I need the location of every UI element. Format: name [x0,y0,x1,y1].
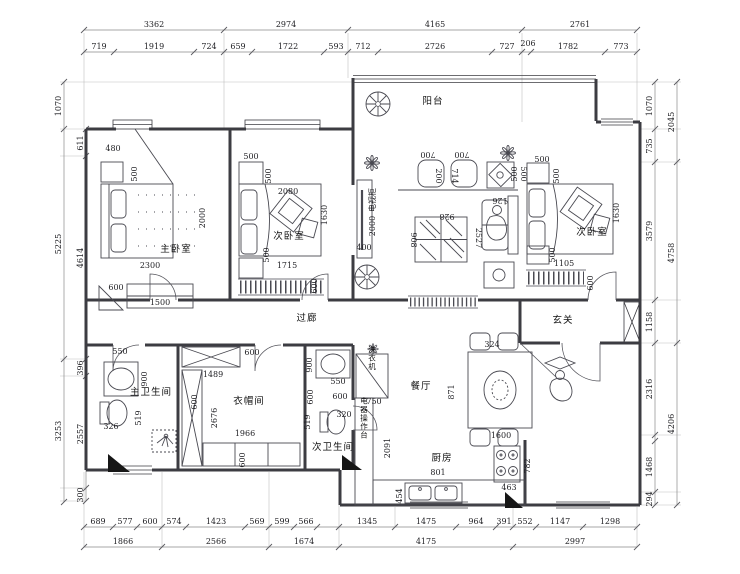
dim-label: 500 [519,166,528,181]
room-label-corridor: 过廊 [296,312,317,324]
level-triangle [505,492,523,508]
dim-label: 2566 [206,537,226,546]
dim-label: 600 [190,394,199,409]
dim-label: 900 [140,371,149,386]
pillow-icon [529,221,545,249]
dim-label: 4758 [667,243,676,263]
dim-label: 577 [117,517,132,526]
plant-icon [361,152,382,173]
dim-label: 611 [76,135,85,150]
dim-label: 2300 [140,261,160,270]
balcony-window [353,76,596,83]
dim-label: 1630 [320,205,329,225]
dim-label: 1866 [113,537,133,546]
plant-icon [497,142,518,163]
shower-head-icon [157,434,173,447]
dim-label: 550 [112,347,127,356]
dim-label: 900 [305,357,314,372]
toilet-icon [100,402,109,424]
label-tv-cabinet: 电视柜 [367,188,377,212]
dim-label: 1966 [235,429,255,438]
side-table-icon [484,262,514,288]
chair-icon [470,429,490,446]
dim-label: 600 [310,278,319,293]
dim-label: 1475 [416,517,436,526]
room-label-dining: 餐厅 [410,380,431,392]
dim-label: 400 [356,243,371,252]
dim-label: 1070 [645,96,654,116]
pillow-icon [241,224,257,254]
dim-label: 500 [264,168,273,183]
dim-label: 396 [76,360,85,375]
kitchen-counter-icon [355,398,525,505]
stove-icon [494,446,520,482]
desk-icon [270,190,312,232]
bed3-icon [527,163,613,264]
dim-label: 4175 [416,537,436,546]
sink-icon [321,354,345,374]
dim-label: 964 [468,517,483,526]
dim-label: 801 [430,468,445,477]
dim-label: 500 [534,155,549,164]
dim-label: 4206 [667,414,676,434]
top-right-window [601,119,633,125]
nightstand-icon [239,162,263,184]
dim-label: 3253 [54,421,63,441]
dim-label: 871 [447,384,456,399]
dim-label: 519 [303,414,312,429]
level-marks [108,454,523,508]
floor-plan-page: 3362 2974 4165 2761 719 1919 724 659 172… [0,0,740,574]
dim-label: 599 [274,517,289,526]
dim-label: 500 [262,247,271,262]
nightstand-icon [239,258,263,278]
dining-table-icon [468,333,532,446]
dim-label: 574 [166,517,181,526]
dim-label: 600 [306,389,315,404]
dim-label: 480 [105,144,120,153]
dim-label: 1722 [278,42,298,51]
room-label-kitchen: 厨房 [431,452,452,464]
dim-label: 2557 [76,424,85,444]
desk-icon [560,187,602,229]
dim-label: 463 [501,483,516,492]
person-sitting-icon [487,206,507,241]
room-label-cloakroom: 衣帽间 [233,395,265,407]
entry-swing-line [520,343,556,377]
dim-label: 1158 [645,312,654,332]
dim-label: 552 [517,517,532,526]
dim-label: 2080 [278,187,298,196]
windows [113,76,640,509]
chair-icon [498,333,518,350]
dim-label: 324 [484,340,499,349]
dim-label: 2997 [565,537,585,546]
dim-label: 550 [330,377,345,386]
dim-label: 600 [238,452,247,467]
dim-label: 1105 [554,259,574,268]
dim-label: 773 [613,42,628,51]
dim-label: 206 [520,39,535,48]
dim-label: 2726 [425,42,445,51]
dim-label: 1600 [491,431,511,440]
entry-window [556,502,610,508]
dim-label: 908 [409,232,418,247]
dim-label: 712 [355,42,370,51]
entry-door [562,343,600,381]
dim-label: 1919 [144,42,164,51]
nightstand-icon [527,163,549,183]
dim-label: 500 [130,166,139,181]
room-label-bed3: 次卧室 [576,226,608,238]
room-label-bed2: 次卧室 [273,230,305,242]
rug-icon [415,217,467,262]
fan-icon [366,92,390,116]
dim-label: 600 [244,348,259,357]
dim-label: 1147 [550,517,570,526]
dim-label: 593 [328,42,343,51]
room-label-bath2: 次卫生间 [312,441,354,453]
dim-label: 2091 [383,438,392,458]
room-label-master: 主卧室 [160,243,192,255]
dim-label: 2676 [210,408,219,428]
dim-label: 689 [90,517,105,526]
floor-plan: 3362 2974 4165 2761 719 1919 724 659 172… [0,0,740,574]
dim-label: 320 [336,410,351,419]
dim-label: 750 [366,397,381,406]
dim-label: 326 [103,422,118,431]
room-label-master-bath: 主卫生间 [130,386,172,398]
dim-label: 2316 [645,379,654,399]
dim-label: 566 [298,517,313,526]
dim-label: 1489 [203,370,223,379]
dim-label: 1674 [294,537,314,546]
dim-label: 700 [420,150,435,159]
dim-label: 300 [76,487,85,502]
dim-label: 928 [439,212,454,221]
kettle-icon [493,269,505,281]
dim-label: 2761 [570,20,590,29]
dim-label: 600 [586,275,595,290]
pillow-icon [111,190,126,218]
walls [86,78,640,505]
dim-label: 3362 [144,20,164,29]
dim-label: 200 [434,168,443,183]
pillow-icon [241,190,257,220]
dim-label: 3579 [645,221,654,241]
dim-label: 1715 [277,261,297,270]
dim-label: 714 [450,168,459,183]
dim-label: 719 [91,42,106,51]
dim-label: 1345 [357,517,377,526]
dim-label: 519 [134,410,143,425]
dim-label: 727 [499,42,514,51]
fan-icon [355,265,379,289]
room-label-foyer: 玄关 [552,314,573,326]
dim-label: 500 [552,168,561,183]
dim-label: 1298 [600,517,620,526]
dim-label: 391 [496,517,511,526]
dim-label: 600 [142,517,157,526]
dim-label: 600 [108,283,123,292]
dim-label: 2527 [474,228,483,248]
dim-label: 2974 [276,20,296,29]
room-label-balcony: 阳台 [422,95,443,107]
dim-label: 569 [249,517,264,526]
dim-label: 1070 [54,96,63,116]
level-triangle [108,454,130,472]
dim-label: 2000 [198,208,207,228]
dim-label: 782 [523,458,532,473]
dim-label: 735 [645,138,654,153]
dim-label: 1782 [558,42,578,51]
dim-label: 600 [332,392,347,401]
dim-label: 454 [395,488,404,503]
label-washer: 洗衣机 [367,344,376,371]
person-standing-icon [545,357,575,401]
dim-label: 4165 [425,20,445,29]
dim-label: 294 [645,491,654,506]
dim-label: 1468 [645,457,654,477]
dim-label: 500 [510,166,519,181]
dim-label: 1500 [150,298,170,307]
dim-label: 2045 [667,112,676,132]
dim-label: 724 [201,42,216,51]
labels: 3362 2974 4165 2761 719 1919 724 659 172… [54,20,676,546]
dim-label: 700 [454,150,469,159]
dim-label: 4614 [76,248,85,268]
dim-label: 500 [243,152,258,161]
radiators [238,270,586,308]
dim-label: 1423 [206,517,226,526]
dim-label: 659 [230,42,245,51]
pillow-icon [111,224,126,252]
furniture [99,129,613,505]
nightstand-icon [101,162,123,182]
pillow-icon [529,189,545,217]
dim-label: 2000 [368,216,377,236]
dim-label: 1630 [612,203,621,223]
centerpiece-icon [484,371,516,409]
dim-label: 126 [492,196,507,205]
dim-label: 5225 [54,234,63,254]
